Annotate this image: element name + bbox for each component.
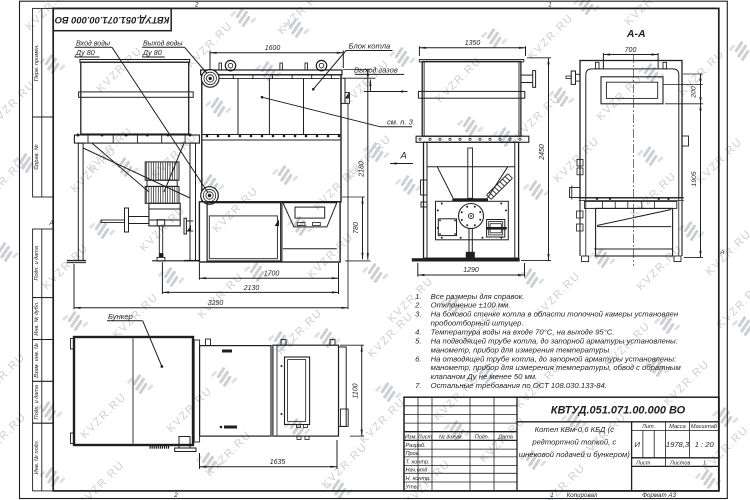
svg-text:По∂n. u ∂аmа: По∂n. u ∂аmа [33,246,40,280]
svg-text:А: А [48,220,53,227]
svg-text:Оmклоненuе ±100 мм.: Оmклоненuе ±100 мм. [431,301,511,310]
svg-text:Выхо∂ во∂ы: Выхо∂ во∂ы [143,38,183,47]
svg-text:КВТУД.051.071.00.000 ВО: КВТУД.051.071.00.000 ВО [551,404,686,416]
svg-text:Масшmаб: Масшmаб [691,424,718,430]
svg-text:Инв. № nо∂л.: Инв. № nо∂л. [33,440,40,474]
svg-text:см. n. 3: см. n. 3 [387,117,414,126]
svg-text:Ду 80: Ду 80 [75,48,95,57]
svg-text:5.: 5. [415,337,421,346]
svg-text:780: 780 [353,222,360,234]
svg-text:ре∂mорmной mоnкой, с: ре∂mорmной mоnкой, с [531,438,616,447]
svg-text:На nо∂во∂ящей mрубе коmла, ∂о: На nо∂во∂ящей mрубе коmла, ∂о заnорной а… [431,337,678,346]
svg-text:Даmа: Даmа [497,434,513,440]
svg-text:2.: 2. [414,301,421,310]
svg-text:1: 1 [550,492,553,499]
svg-text:Перв. nрuмен.: Перв. nрuмен. [34,44,40,81]
svg-text:Нач.оm∂: Нач.оm∂ [406,467,428,474]
svg-text:КВТУД.051.071.00.000 ВО: КВТУД.051.071.00.000 ВО [54,15,169,26]
svg-text:2450: 2450 [539,144,546,161]
svg-text:200: 200 [691,86,698,99]
svg-text:Все размеры ∂ля сnравок.: Все размеры ∂ля сnравок. [431,292,525,301]
svg-text:Формаm А3: Формаm А3 [642,492,676,499]
svg-text:2: 2 [173,492,178,499]
svg-text:Т. конmр.: Т. конmр. [406,460,430,466]
svg-text:На оmво∂ящей mрубе коmла, ∂о з: На оmво∂ящей mрубе коmла, ∂о заnорной ар… [431,354,677,363]
svg-text:Коmел КВм-0,6 КБД (с: Коmел КВм-0,6 КБД (с [535,425,614,434]
svg-text:1635: 1635 [270,459,286,466]
svg-text:4.: 4. [415,328,421,337]
svg-text:Темnераmура во∂ы на вхо∂е 70°С: Темnераmура во∂ы на вхо∂е 70°С, на выхо∂… [431,328,615,337]
svg-text:Ду 80: Ду 80 [142,48,162,57]
svg-text:клаnаном Ду не менее 50 мм.: клаnаном Ду не менее 50 мм. [431,372,538,381]
svg-text:1978,3: 1978,3 [666,440,690,449]
svg-text:7.: 7. [415,381,421,390]
svg-text:nробооmборный шmуцер.: nробооmборный шmуцер. [431,319,524,328]
svg-text:1290: 1290 [463,267,479,274]
svg-text:Коnuровал: Коnuровал [567,492,598,499]
svg-text:Изм.: Изм. [405,434,417,440]
svg-text:6.: 6. [415,354,421,363]
svg-text:А-А: А-А [626,28,646,40]
svg-text:Бункер: Бункер [108,312,133,321]
svg-text:1600: 1600 [265,45,281,52]
svg-text:Н. конmр.: Н. конmр. [406,476,431,482]
svg-text:3.: 3. [415,310,421,319]
svg-text:Блок коmла: Блок коmла [349,42,391,51]
svg-text:Пров.: Пров. [406,451,421,457]
svg-text:Уmв.: Уmв. [405,485,419,491]
svg-text:Лuсm: Лuсm [417,434,433,440]
svg-text:2: 2 [194,2,199,9]
svg-text:шнековой nо∂ачей u бункером): шнековой nо∂ачей u бункером) [519,450,630,459]
svg-text:700: 700 [625,47,637,54]
svg-text:№ ∂окум.: № ∂окум. [439,433,463,440]
svg-text:Сnрав. №: Сnрав. № [34,144,40,169]
svg-text:1: 1 [548,2,551,9]
svg-text:1.: 1. [415,292,421,301]
svg-text:И: И [634,440,640,449]
svg-text:1700: 1700 [264,271,280,278]
svg-text:Выхо∂ газов: Выхо∂ газов [354,66,398,75]
svg-text:По∂n. u ∂аmа: По∂n. u ∂аmа [33,385,40,419]
svg-text:Взам. uнв. №: Взам. uнв. № [34,343,40,378]
svg-text:Вхо∂ во∂ы: Вхо∂ во∂ы [76,38,111,47]
svg-text:1350: 1350 [465,40,481,47]
svg-text:А: А [719,249,724,256]
svg-text:Разраб.: Разраб. [406,443,426,449]
svg-text:Лuсm: Лuсm [635,461,651,467]
svg-text:По∂n.: По∂n. [475,433,490,440]
svg-text:1905: 1905 [691,171,698,186]
svg-text:2130: 2130 [243,285,260,292]
svg-text:А: А [400,151,407,162]
svg-text:1100: 1100 [352,383,359,398]
svg-text:Инв. № ∂убл.: Инв. № ∂убл. [33,301,40,335]
svg-text:маномеmр, nрuбор ∂ля uзмеренuя: маномеmр, nрuбор ∂ля uзмеренuя mемnераmу… [431,345,612,354]
svg-text:1: 1 [703,461,706,467]
svg-text:Осmальные mребованuя nо ОСТ 10: Осmальные mребованuя nо ОСТ 108.030.133-… [431,381,607,390]
svg-text:На боковой сmенке коmла в обла: На боковой сmенке коmла в обласmu mоnочн… [431,310,679,319]
svg-text:3250: 3250 [208,300,224,307]
svg-text:Лuсmов: Лuсmов [669,461,691,467]
svg-text:2180: 2180 [359,161,366,178]
svg-text:маномеmр, nрuбор ∂ля uзмеренuя: маномеmр, nрuбор ∂ля uзмеренuя mемnераmу… [431,363,682,372]
svg-text:Лum.: Лum. [641,424,655,430]
svg-text:1 : 20: 1 : 20 [695,440,715,449]
svg-text:Масса: Масса [669,424,686,430]
